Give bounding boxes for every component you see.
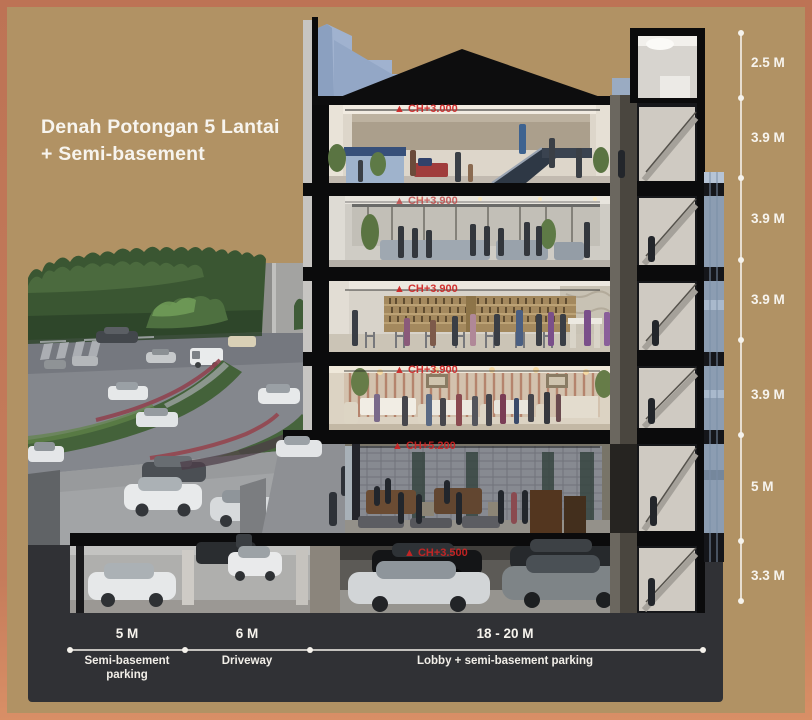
svg-text:+ Semi-basement: + Semi-basement <box>41 143 205 165</box>
svg-text:3.9 M: 3.9 M <box>751 130 785 145</box>
svg-text:2.5 M: 2.5 M <box>751 55 785 70</box>
svg-text:Semi-basement: Semi-basement <box>84 655 169 667</box>
svg-text:Denah Potongan 5 Lantai: Denah Potongan 5 Lantai <box>41 116 280 138</box>
svg-text:3.9 M: 3.9 M <box>751 211 785 226</box>
svg-text:▲ CH+3.900: ▲ CH+3.900 <box>394 283 458 295</box>
svg-text:3.9 M: 3.9 M <box>751 387 785 402</box>
svg-text:▲ CH+3.900: ▲ CH+3.900 <box>394 195 458 207</box>
svg-text:▲ CH+3.500: ▲ CH+3.500 <box>404 547 468 559</box>
svg-text:18 - 20 M: 18 - 20 M <box>476 626 533 641</box>
svg-text:▲ CH+5.200: ▲ CH+5.200 <box>392 440 456 452</box>
svg-text:parking: parking <box>106 669 148 681</box>
svg-text:▲ CH+3.000: ▲ CH+3.000 <box>394 103 458 115</box>
svg-text:5 M: 5 M <box>116 626 139 641</box>
svg-text:5 M: 5 M <box>751 479 774 494</box>
svg-text:▲ CH+3.900: ▲ CH+3.900 <box>394 364 458 376</box>
svg-text:3.3 M: 3.3 M <box>751 568 785 583</box>
svg-text:Driveway: Driveway <box>222 655 273 667</box>
svg-text:3.9 M: 3.9 M <box>751 292 785 307</box>
svg-text:6 M: 6 M <box>236 626 259 641</box>
svg-text:Lobby + semi-basement parking: Lobby + semi-basement parking <box>417 655 593 667</box>
